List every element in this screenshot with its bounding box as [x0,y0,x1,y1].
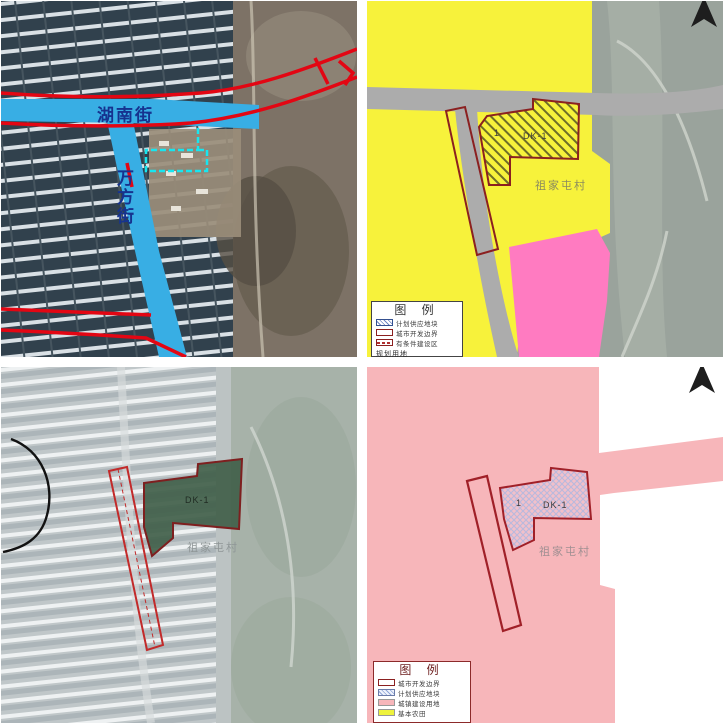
red-outline-swatch-icon [376,329,393,336]
legend-item: 城市开发边界 [376,328,458,337]
legend-item: 计划供应地块 [378,688,466,697]
red-dashed-swatch-icon [376,339,393,346]
quadrant-planning-map: 1 DK-1 祖家屯村 图 例 计划供应地块 城市开发边界 有条件建设区 规划用… [367,1,723,357]
pink-swatch-icon [378,699,395,706]
yellow-swatch-icon [378,709,395,716]
quadrant-satellite-parcel: DK-1 祖家屯村 [1,367,357,723]
legend-box: 图 例 城市开发边界 计划供应地块 城镇建设用地 基本农田 [373,661,471,723]
satellite-map-canvas [1,1,357,357]
red-outline-swatch-icon [378,679,395,686]
legend-title: 图 例 [376,304,458,317]
crosshatch-swatch-icon [378,689,395,696]
planned-area-pink [509,229,610,357]
legend-item: 有条件建设区 [376,338,458,347]
legend-title: 图 例 [378,664,466,677]
quadrant-satellite-roads: 湖南街 万方街 [1,1,357,357]
legend-item: 城镇建设用地 [378,698,466,707]
legend-item: 计划供应地块 [376,318,458,327]
map-sheet: 湖南街 万方街 [0,0,724,724]
white-area-bottom [600,481,723,723]
legend-item: 城市开发边界 [378,678,466,687]
hatch-swatch-icon [376,319,393,326]
legend-footer: 规划用地 [376,349,458,357]
legend-box: 图 例 计划供应地块 城市开发边界 有条件建设区 规划用地 [371,301,463,357]
legend-item: 基本农田 [378,708,466,717]
quadrant-supply-plan: 1 DK-1 祖家屯村 图 例 城市开发边界 计划供应地块 城镇建设用地 基本农… [367,367,723,723]
faded-satellite-canvas [1,367,357,723]
